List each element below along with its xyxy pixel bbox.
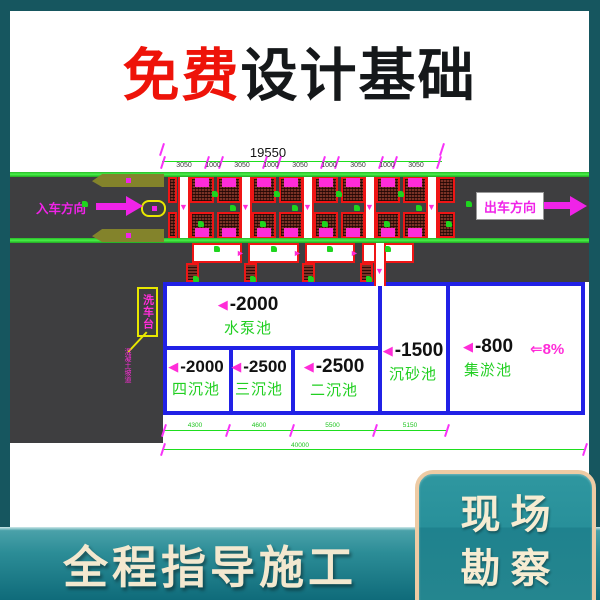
- flow-arrow-icon: ▼: [303, 203, 312, 212]
- dim-segment-label: 4300: [188, 422, 202, 429]
- dim-segment-label: 3050: [292, 162, 308, 169]
- platform-cell: [403, 177, 427, 203]
- dim-segment-label: 3050: [350, 162, 366, 169]
- pool-three: ◀-2500 三沉池: [229, 357, 289, 399]
- corner-badge-line1: 现场: [451, 488, 561, 542]
- pool-pump: ◀-2000 水泵池: [183, 294, 313, 338]
- title-main: 设计基础: [241, 30, 477, 112]
- dim-segment-label: 1000: [321, 162, 337, 169]
- green-mark: [354, 205, 360, 211]
- dim-total-bottom: 40000: [291, 442, 309, 449]
- title-highlight: 免费: [123, 30, 241, 112]
- green-mark: [398, 191, 404, 197]
- dim-segment-label: 3050: [234, 162, 250, 169]
- depth-marker-icon: ◀: [218, 297, 228, 313]
- green-mark: [250, 276, 256, 282]
- green-mark: [198, 221, 204, 227]
- green-mark: [385, 246, 391, 252]
- dim-segment-label: 1000: [379, 162, 395, 169]
- platform-cell: [403, 212, 427, 238]
- marker-square: [284, 228, 298, 237]
- callout-box: 洗车台: [137, 287, 158, 337]
- platform-cell: [279, 177, 303, 203]
- corner-badge: 现场 勘察: [415, 470, 596, 600]
- depth-marker-icon: ◀: [383, 343, 393, 359]
- exit-direction-box: 出车方向: [476, 192, 544, 220]
- promo-poster: 免费 设计基础 19550 入车方向 出车方向 ▼▼▼▼▼ ▼ 洗车台 混凝土坡…: [0, 0, 600, 600]
- pool-two: ◀-2500 二沉池: [295, 356, 373, 400]
- flow-arrow-icon: ▼: [179, 203, 188, 212]
- marker-square: [319, 228, 333, 237]
- marker-square: [381, 228, 395, 237]
- platform-cell: [376, 177, 400, 203]
- dim-segment-label: 5500: [325, 422, 339, 429]
- lane-taper-upper: [92, 174, 164, 187]
- corner-badge-line2: 勘察: [451, 542, 561, 596]
- pool-four: ◀-2000 四沉池: [165, 357, 227, 399]
- green-mark: [230, 205, 236, 211]
- slope-label: ⇐8%: [530, 340, 564, 358]
- platform-cell: [252, 177, 276, 203]
- page-title: 免费 设计基础: [10, 11, 589, 131]
- entry-arrow-head-icon: [126, 196, 143, 216]
- dim-segment-label: 5150: [403, 422, 417, 429]
- marker-square: [346, 178, 360, 187]
- depth-marker-icon: ◀: [463, 339, 473, 355]
- exit-arrow-icon: [544, 202, 570, 209]
- lane-island: [141, 200, 166, 217]
- green-mark: [446, 221, 452, 227]
- dim-line-bottom: [163, 430, 446, 431]
- exit-arrow-head-icon: [570, 196, 587, 216]
- marker-square: [408, 178, 422, 187]
- dim-segment-label: 1000: [205, 162, 221, 169]
- marker-square: [319, 178, 333, 187]
- exit-direction-label: 出车方向: [484, 197, 536, 216]
- platform-cell: [314, 177, 338, 203]
- marker-square: [408, 228, 422, 237]
- green-mark: [327, 246, 333, 252]
- marker-square: [222, 228, 236, 237]
- flow-arrow-icon: ►: [350, 249, 359, 258]
- entry-direction-label: 入车方向: [36, 198, 86, 217]
- platform-cell: [190, 177, 214, 203]
- green-mark: [384, 221, 390, 227]
- green-mark: [416, 205, 422, 211]
- green-mark: [214, 246, 220, 252]
- dim-segment-label: 3050: [408, 162, 424, 169]
- marker-square: [195, 178, 209, 187]
- flow-arrow-icon: ▼: [427, 203, 436, 212]
- flow-arrow-icon: ▼: [365, 203, 374, 212]
- marker-square: [222, 178, 236, 187]
- depth-marker-icon: ◀: [304, 359, 314, 375]
- banner-text: 全程指导施工: [0, 527, 420, 600]
- platform-cell: [168, 177, 177, 203]
- green-mark: [82, 201, 88, 207]
- marker-square: [195, 228, 209, 237]
- marker-square: [257, 178, 271, 187]
- dim-segment-label: 1000: [263, 162, 279, 169]
- pool-divider: [446, 286, 450, 411]
- dim-segment-label: 4600: [252, 422, 266, 429]
- callout-vertical-label: 混凝土坡道: [122, 348, 132, 383]
- green-mark: [212, 191, 218, 197]
- marker-square: [346, 228, 360, 237]
- platform-cell: [168, 212, 177, 238]
- depth-marker-icon: ◀: [168, 359, 178, 375]
- platform-cell: [438, 177, 455, 203]
- green-mark: [366, 276, 372, 282]
- dim-segment-label: 3050: [176, 162, 192, 169]
- wash-platform: ▼▼▼▼▼: [168, 177, 455, 238]
- marker-square: [381, 178, 395, 187]
- pool-divider: [167, 346, 378, 350]
- platform-cell: [341, 177, 365, 203]
- platform-cell: [217, 177, 241, 203]
- pool-silt: ◀-800 集淤池: [455, 336, 521, 380]
- marker-square: [284, 178, 298, 187]
- depth-marker-icon: ◀: [231, 359, 241, 375]
- marker-square: [257, 228, 271, 237]
- callout-label: 洗车台: [140, 294, 156, 330]
- flow-arrow-icon: ▼: [241, 203, 250, 212]
- flow-arrow-icon: ►: [236, 249, 245, 258]
- green-mark: [466, 201, 472, 207]
- green-mark: [260, 221, 266, 227]
- dim-line-total: [163, 449, 585, 450]
- green-mark: [308, 276, 314, 282]
- entry-arrow-icon: [96, 203, 126, 210]
- green-mark: [193, 276, 199, 282]
- platform-cell: [217, 212, 241, 238]
- green-mark: [336, 191, 342, 197]
- green-mark: [274, 191, 280, 197]
- flow-arrow-icon: ►: [293, 249, 302, 258]
- green-mark: [322, 221, 328, 227]
- platform-cell: [341, 212, 365, 238]
- lane-taper-lower: [92, 229, 164, 242]
- green-mark: [271, 246, 277, 252]
- platform-cell: [279, 212, 303, 238]
- pool-sand: ◀-1500 沉砂池: [380, 340, 446, 384]
- green-mark: [292, 205, 298, 211]
